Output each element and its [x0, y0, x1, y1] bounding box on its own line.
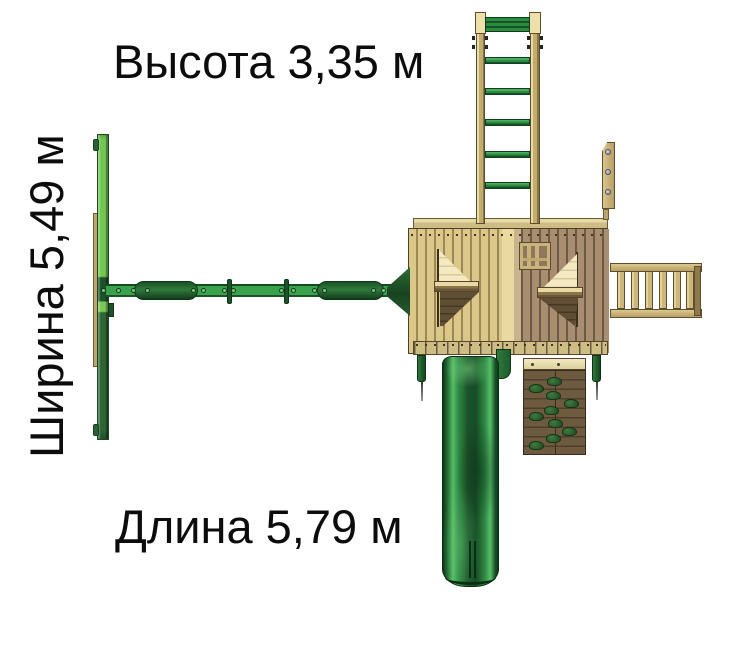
ladder-rung [485, 57, 530, 64]
rock-hold [564, 399, 579, 408]
swing-hanger-bracket-left [134, 281, 198, 300]
beam-bolt [322, 288, 327, 293]
swing-end-foot-bottom [93, 424, 99, 436]
access-ladder-rung [659, 271, 667, 309]
window-mullion [527, 246, 531, 266]
slide-exit-mouth [445, 570, 496, 585]
rockwall-bolt [531, 363, 534, 366]
rock-hold [546, 434, 561, 443]
ladder-bracket-bolt [472, 45, 475, 49]
tube-slide [442, 356, 499, 587]
ladder-rail-right [530, 13, 540, 224]
post-bolt [605, 149, 611, 155]
ladder-rung [485, 88, 530, 95]
beam-bolt [371, 288, 376, 293]
ladder-rail-cap-right [529, 12, 541, 34]
window-mullion [535, 246, 539, 266]
swing-hanger-tab-2 [284, 279, 289, 304]
playground-top-view-diagram: Высота 3,35 м Ширина 5,49 м Длина 5,79 м [0, 0, 750, 650]
ladder-bracket-bolt [540, 36, 543, 40]
beam-bolt [279, 288, 284, 293]
ladder-bracket-bolt [527, 45, 530, 49]
rock-hold [547, 377, 562, 386]
beam-bolt [381, 288, 386, 293]
ground-anchor-post-right [592, 355, 601, 382]
deck-board-highlight [502, 229, 514, 353]
beam-bolt [145, 288, 150, 293]
access-ladder-rail-bottom [610, 309, 702, 318]
beam-junction-bracket [108, 303, 114, 317]
rock-hold [562, 427, 577, 436]
beam-bolt [222, 288, 227, 293]
rock-hold [544, 406, 559, 415]
width-dimension-label: Ширина 5,49 м [21, 134, 74, 458]
post-bolt [605, 169, 611, 175]
rock-hold [529, 384, 544, 393]
rockwall-bolt [557, 363, 560, 366]
height-dimension-label: Высота 3,35 м [113, 36, 424, 89]
bottom-rail-screw-row [416, 344, 606, 346]
canopy-left-shelf [434, 281, 479, 292]
rock-hold [546, 391, 561, 400]
rock-hold [529, 412, 544, 421]
ladder-top-bar [485, 17, 530, 32]
window-transom [523, 258, 547, 261]
length-dimension-label: Длина 5,79 м [115, 501, 403, 554]
ladder-rail-left [476, 13, 485, 224]
access-ladder-rung [631, 271, 639, 309]
access-ladder-rung [686, 271, 694, 309]
access-ladder-end-cap [694, 266, 701, 316]
deck-window [520, 243, 550, 269]
access-ladder-rung [673, 271, 681, 309]
ground-anchor-post-left [417, 355, 426, 382]
ladder-rung [485, 151, 530, 158]
rock-hold [529, 441, 544, 450]
access-ladder-rung [617, 271, 625, 309]
beam-bolt [101, 288, 106, 293]
ladder-bracket-bolt [527, 36, 530, 40]
ladder-rung [485, 119, 530, 126]
beam-bolt [131, 288, 136, 293]
beam-bolt [231, 288, 236, 293]
rockwall-top-rail [523, 358, 586, 370]
ladder-bracket-bolt [485, 36, 488, 40]
ladder-bracket-bolt [485, 45, 488, 49]
beam-bolt [191, 288, 196, 293]
beam-bolt [201, 288, 206, 293]
beam-bolt [116, 288, 121, 293]
beam-bolt [291, 288, 296, 293]
deck-screw-row [411, 234, 605, 236]
ground-anchor-stake-left [421, 382, 423, 401]
rock-hold [548, 419, 563, 428]
beam-bolt [312, 288, 317, 293]
ladder-bracket-bolt [472, 36, 475, 40]
swing-aframe-bracket [387, 267, 410, 316]
swing-end-foot-top [93, 139, 99, 151]
ladder-bracket-bolt [540, 45, 543, 49]
ground-anchor-stake-right [596, 382, 598, 400]
rockwall-post-stem [603, 209, 609, 220]
access-ladder-rung [645, 271, 653, 309]
ladder-rung [485, 182, 530, 189]
post-bolt [605, 189, 611, 195]
canopy-right-shelf [537, 287, 583, 298]
